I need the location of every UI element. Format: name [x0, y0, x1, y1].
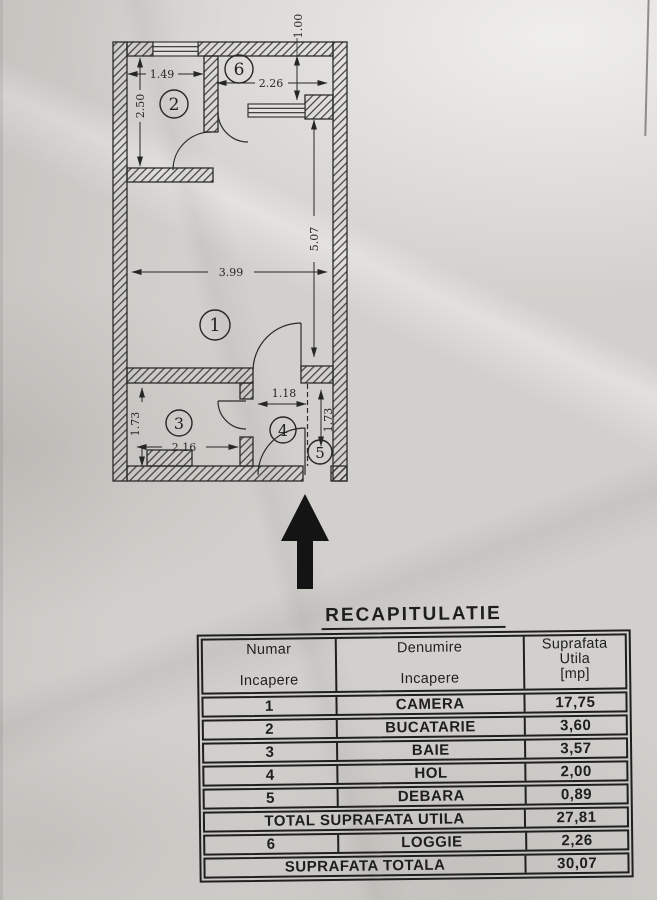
room-name-cell: BAIE — [336, 741, 524, 760]
dim-room1-width: 3.99 — [219, 266, 244, 279]
wall-room1-bottom-right — [301, 366, 333, 383]
header-suprafata-utila: Suprafata Utila [mp] — [522, 635, 625, 688]
wall-kitchen-bottom — [127, 168, 213, 182]
dimension-labels: 1.49 2.50 2.26 1.00 3.99 5.07 2.16 1.73 … — [129, 14, 335, 454]
dimension-lines — [128, 38, 327, 466]
door-arc-room1 — [253, 323, 301, 371]
dim-room6-depth: 1.00 — [292, 14, 305, 39]
room-area-cell: 17,75 — [523, 693, 626, 711]
walls — [113, 42, 347, 481]
svg-text:6: 6 — [234, 60, 245, 80]
room-number-cell: 6 — [205, 835, 337, 854]
table-row-hol: 4 HOL 2,00 — [202, 760, 628, 786]
wall-left — [113, 42, 127, 481]
room-marker-6: 6 — [225, 55, 253, 83]
wall-partition-kitchen-loggia — [204, 56, 218, 132]
table-header-row: Numar Incapere Denumire Incapere Suprafa… — [201, 633, 628, 694]
table-row-camera: 1 CAMERA 17,75 — [201, 691, 627, 717]
dim-room3-height: 1.73 — [129, 412, 142, 437]
dim-room3-width: 2.16 — [172, 441, 197, 454]
table-row-total-utila: TOTAL SUPRAFATA UTILA 27,81 — [203, 806, 629, 832]
wall-loggia-corner — [305, 95, 333, 119]
room-area-cell: 2,26 — [525, 831, 628, 849]
table-row-total: SUPRAFATA TOTALA 30,07 — [203, 852, 629, 878]
header-numar-incapere: Numar Incapere — [203, 639, 335, 693]
svg-text:4: 4 — [278, 421, 288, 440]
svg-text:3: 3 — [174, 414, 184, 433]
wall-bath-jamb-top — [240, 383, 253, 399]
svg-text:5: 5 — [315, 444, 325, 462]
svg-text:2: 2 — [169, 95, 180, 115]
room-name-cell: HOL — [336, 764, 524, 783]
table-row-debara: 5 DEBARA 0,89 — [203, 783, 629, 809]
wall-room1-bottom-left — [127, 368, 253, 383]
room-area-cell: 0,89 — [524, 785, 627, 803]
room-marker-1: 1 — [200, 310, 230, 340]
scanned-floor-plan-document: { "floor_plan": { "room_numbers": { "r1"… — [0, 0, 657, 900]
floor-plan: 1.49 2.50 2.26 1.00 3.99 5.07 2.16 1.73 … — [0, 0, 657, 610]
wall-bottom-right — [331, 466, 347, 481]
recap-section: RECAPITULATIE Numar Incapere Denumire In… — [196, 601, 633, 882]
room-number-cell: 2 — [204, 720, 336, 739]
room-area-cell: 2,00 — [524, 762, 627, 780]
room-number-cell: 1 — [203, 697, 335, 716]
recap-title: RECAPITULATIE — [321, 603, 506, 630]
total-utila-label: TOTAL SUPRAFATA UTILA — [205, 810, 524, 831]
wall-bath-jamb-bottom — [240, 437, 253, 466]
room-number-cell: 3 — [204, 743, 336, 762]
total-label: SUPRAFATA TOTALA — [205, 856, 524, 877]
total-value: 30,07 — [525, 854, 628, 872]
entrance-arrow-icon — [281, 494, 329, 589]
dim-room5-height: 1.73 — [322, 408, 335, 433]
svg-text:1: 1 — [209, 315, 220, 336]
wall-bottom — [127, 466, 303, 481]
room-name-cell: CAMERA — [335, 695, 523, 714]
door-arc-loggia — [218, 112, 248, 142]
room-name-cell: DEBARA — [336, 787, 524, 806]
room-area-cell: 3,60 — [523, 716, 626, 734]
dim-room2-height: 2.50 — [134, 94, 147, 119]
room-number-cell: 5 — [205, 789, 337, 808]
room-name-cell: BUCATARIE — [335, 718, 523, 737]
wall-top-right — [198, 42, 333, 56]
room-name-cell: LOGGIE — [337, 833, 525, 852]
room-area-cell: 3,57 — [524, 739, 627, 757]
total-utila-value: 27,81 — [524, 808, 627, 826]
dim-room4-width: 1.18 — [272, 387, 297, 400]
window-kitchen — [153, 42, 198, 56]
table-row-loggie: 6 LOGGIE 2,26 — [203, 829, 629, 855]
dim-room1-height: 5.07 — [308, 227, 321, 252]
header-denumire-incapere: Denumire Incapere — [334, 637, 523, 691]
room-number-cell: 4 — [204, 766, 336, 785]
table-row-bucatarie: 2 BUCATARIE 3,60 — [202, 714, 628, 740]
recap-table: Numar Incapere Denumire Incapere Suprafa… — [197, 629, 634, 882]
door-arc-kitchen — [173, 132, 211, 170]
room-marker-3: 3 — [166, 410, 192, 436]
room-marker-5: 5 — [308, 440, 332, 464]
wall-top-left — [127, 42, 153, 56]
window-loggia — [248, 104, 305, 117]
dim-room2-width: 1.49 — [150, 68, 175, 81]
table-row-baie: 3 BAIE 3,57 — [202, 737, 628, 763]
room-marker-2: 2 — [160, 90, 188, 118]
door-arc-bath — [218, 401, 246, 429]
dim-room6-width: 2.26 — [259, 77, 284, 90]
wall-right — [333, 42, 347, 481]
